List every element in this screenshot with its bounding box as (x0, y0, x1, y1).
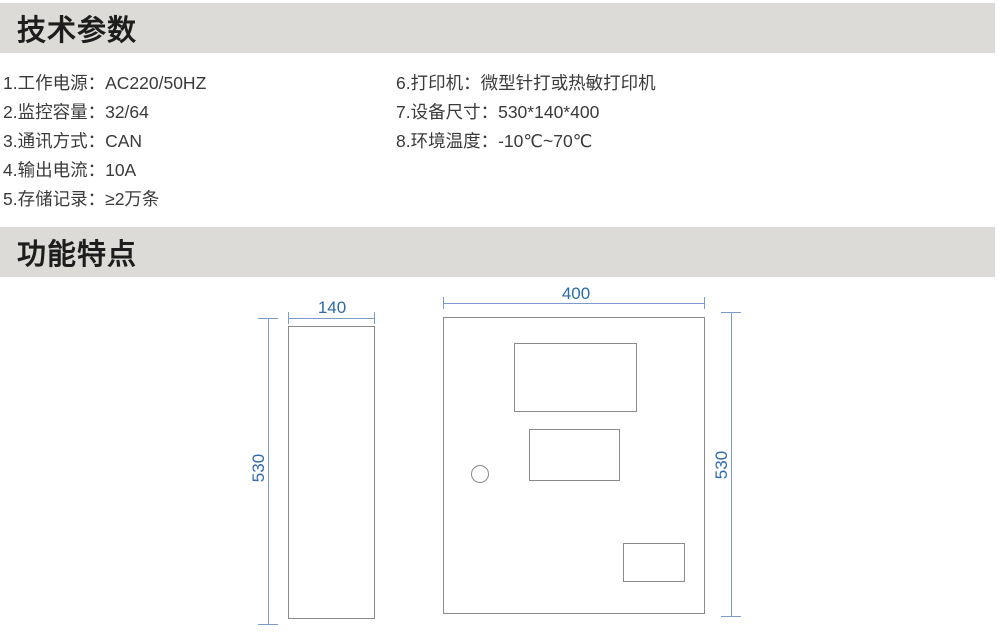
dim-tick (721, 312, 741, 313)
dim-tick (258, 624, 278, 625)
spec-item: 3.通讯方式：CAN (3, 126, 206, 155)
side-height-dim-label: 530 (250, 448, 268, 488)
spec-item: 7.设备尺寸：530*140*400 (396, 97, 656, 126)
display-window-small (623, 543, 685, 582)
dim-line-400 (443, 303, 705, 304)
front-height-dim-label: 530 (713, 445, 731, 485)
dim-tick (721, 616, 741, 617)
dim-tick (704, 297, 705, 309)
section-title: 技术参数 (0, 7, 137, 49)
section-header-tech-params: 技术参数 (0, 3, 995, 53)
section-title: 功能特点 (0, 231, 137, 273)
spec-sheet-page: 技术参数 1.工作电源：AC220/50HZ 2.监控容量：32/64 3.通讯… (0, 0, 1000, 641)
spec-item: 4.输出电流：10A (3, 155, 206, 184)
lock-hole-circle (471, 465, 489, 483)
side-view-outline (288, 326, 375, 619)
spec-list-left: 1.工作电源：AC220/50HZ 2.监控容量：32/64 3.通讯方式：CA… (3, 68, 206, 213)
section-header-features: 功能特点 (0, 227, 995, 277)
spec-item: 5.存储记录：≥2万条 (3, 184, 206, 213)
spec-item: 8.环境温度：-10℃~70℃ (396, 126, 656, 155)
dim-line-530-left (268, 318, 269, 625)
spec-list-right: 6.打印机：微型针打或热敏打印机 7.设备尺寸：530*140*400 8.环境… (396, 68, 656, 155)
display-window-medium (529, 429, 620, 481)
dim-tick (288, 312, 289, 324)
dim-line-530-right (731, 312, 732, 617)
dim-tick (443, 297, 444, 309)
spec-item: 6.打印机：微型针打或热敏打印机 (396, 68, 656, 97)
front-width-dim-label: 400 (546, 285, 606, 303)
dim-line-140 (288, 318, 375, 319)
dim-tick (374, 312, 375, 324)
spec-item: 2.监控容量：32/64 (3, 97, 206, 126)
display-window-large (514, 343, 637, 412)
dim-tick (258, 318, 278, 319)
spec-item: 1.工作电源：AC220/50HZ (3, 68, 206, 97)
side-width-dim-label: 140 (302, 299, 362, 317)
